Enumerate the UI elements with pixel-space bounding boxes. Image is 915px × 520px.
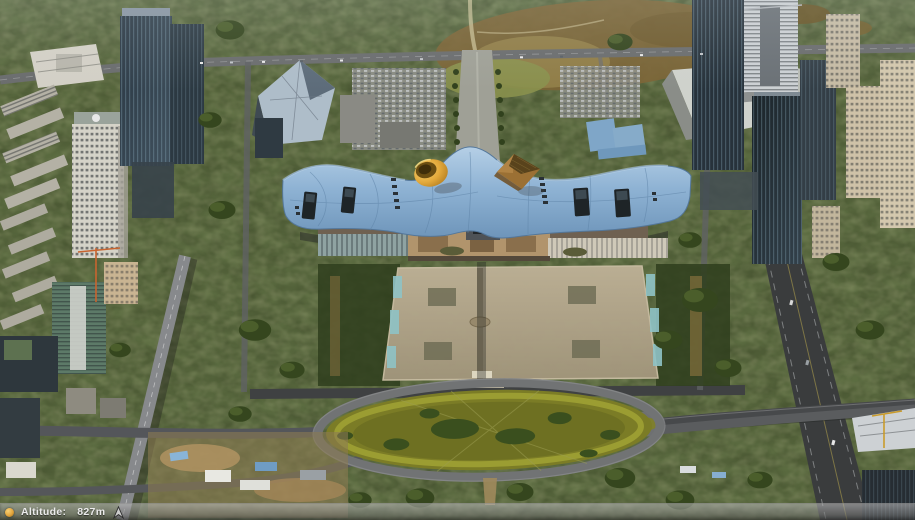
south-axis-path — [483, 478, 497, 505]
altitude-value: 827m — [77, 506, 105, 518]
atmospheric-haze — [0, 0, 915, 90]
altitude-hud-bar: Altitude: 827m — [0, 503, 915, 520]
grid-tower — [72, 112, 128, 258]
altitude-label: Altitude: — [21, 506, 66, 518]
status-dot-icon — [5, 508, 14, 517]
civic-square — [318, 262, 730, 388]
aerial-scene — [0, 0, 915, 520]
navigation-arrow-icon — [113, 506, 124, 519]
map-viewport[interactable]: Altitude: 827m — [0, 0, 915, 520]
west-plaza-street — [244, 62, 248, 392]
axis-shadow-line — [477, 262, 486, 384]
plaza-surface — [383, 266, 658, 380]
